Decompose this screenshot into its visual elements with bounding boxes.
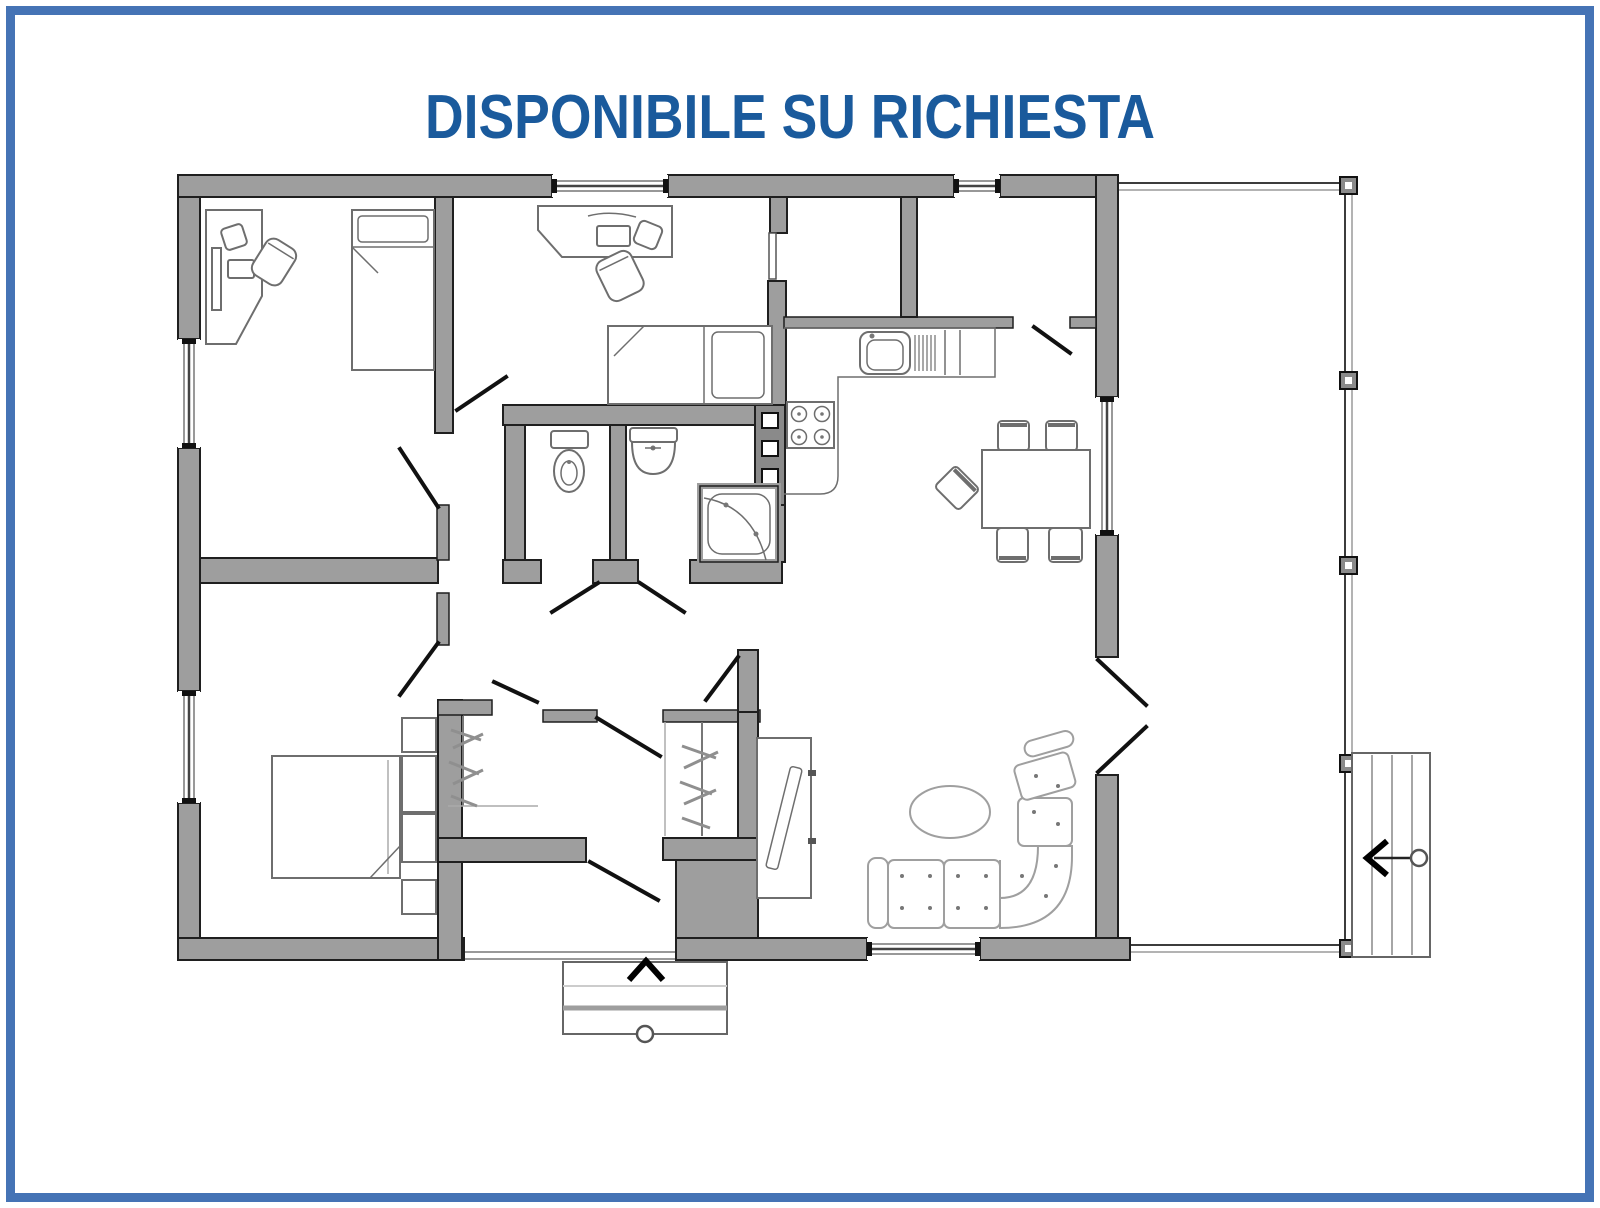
wall-right-2 <box>1096 535 1118 657</box>
wall-closet-a-stub <box>543 710 597 722</box>
wall-top-1 <box>178 175 552 197</box>
entry-start-marker <box>637 1026 653 1042</box>
wall-bottom-right <box>980 938 1130 960</box>
bedroom1-furniture <box>206 210 434 370</box>
page-title: DISPONIBILE SU RICHIESTA <box>425 83 1155 152</box>
wall-living-west-upper <box>738 650 758 712</box>
sofa-armrest-left <box>868 858 888 928</box>
floor-plan-page: DISPONIBILE SU RICHIESTA <box>0 0 1600 1208</box>
desk1-keyboard <box>228 260 254 278</box>
wall-bath-foot-west <box>503 560 541 583</box>
wall-corner-block <box>676 860 758 938</box>
floor-plan-svg: DISPONIBILE SU RICHIESTA <box>0 0 1600 1208</box>
window-right <box>1096 397 1118 535</box>
door-living-room <box>706 657 738 700</box>
hanging-clothes-2 <box>680 746 718 828</box>
master-bedroom-furniture <box>272 718 436 914</box>
double-bed <box>272 756 400 878</box>
wall-bath-middle <box>610 425 626 562</box>
wall-right-1 <box>1096 175 1118 397</box>
terrace <box>1112 177 1430 957</box>
living-room-furniture <box>757 729 1077 928</box>
wall-strip-stub <box>770 197 787 233</box>
single-bed-1 <box>352 210 434 370</box>
window-top-2 <box>954 175 1000 197</box>
window-left-1 <box>178 339 200 448</box>
wall-right-3 <box>1096 775 1118 938</box>
door-closet-a <box>494 682 537 702</box>
kitchen-sink <box>860 332 910 374</box>
wall-utility-west <box>901 197 917 317</box>
steps-start-marker <box>1411 850 1427 866</box>
door-master-bedroom <box>400 643 438 695</box>
door-bedroom2 <box>457 377 506 410</box>
wall-top-2 <box>668 175 954 197</box>
shower-cabin <box>700 486 778 562</box>
dining-chair-1 <box>998 421 1029 451</box>
wall-vestibule-north <box>438 838 586 862</box>
door-open-kitchen <box>769 233 776 279</box>
stove-4-burners <box>787 402 834 448</box>
terrace-posts <box>1112 177 1357 957</box>
wall-stub-b <box>437 593 449 645</box>
french-door-leaf-2 <box>1098 727 1146 772</box>
window-left-2 <box>178 691 200 803</box>
wall-bottom-center <box>676 938 867 960</box>
dining-chair-2 <box>1046 421 1077 451</box>
entry-steps <box>464 952 727 1042</box>
wall-closet-b-south <box>663 838 758 860</box>
wall-kitchen-north <box>784 317 1013 328</box>
outdoor-steps <box>1352 753 1430 957</box>
door-utility-room <box>1034 327 1070 353</box>
wall-bath-west <box>505 425 525 562</box>
door-shower-room <box>640 583 684 612</box>
single-bed-2 <box>608 326 772 404</box>
bathroom-fixtures <box>551 428 778 562</box>
dining-table <box>982 450 1090 528</box>
wall-bath-foot-center <box>593 560 638 583</box>
tv-cabinet <box>757 738 816 898</box>
desk2-keyboard <box>597 226 630 246</box>
dish-drainer <box>915 335 935 371</box>
bedroom2-furniture <box>538 206 772 404</box>
door-passage <box>597 718 660 756</box>
wall-closet-b-east <box>738 712 758 838</box>
door-bedroom1 <box>400 449 438 507</box>
wall-bath-north <box>503 405 770 425</box>
washbasin <box>630 428 677 474</box>
wall-left-3 <box>178 803 200 960</box>
dining-chair-3 <box>997 528 1028 562</box>
wall-master-east <box>438 700 462 960</box>
wall-kitchen-north-stub <box>1070 317 1096 328</box>
dining-chair-5 <box>934 465 979 510</box>
dining-chair-4 <box>1049 528 1082 562</box>
wardrobe-column <box>402 718 436 914</box>
closet-right <box>665 722 718 836</box>
kitchen-furniture <box>784 328 995 494</box>
door-vestibule <box>590 862 658 900</box>
coffee-table <box>910 786 990 838</box>
wall-bottom-master <box>178 938 464 960</box>
wall-left-rooms-divider <box>200 558 438 583</box>
wall-stub-a <box>437 505 449 560</box>
wall-bed1-east <box>435 197 453 433</box>
wall-closet-a-north <box>438 700 492 715</box>
dining-furniture <box>934 421 1090 562</box>
wall-left-2 <box>178 448 200 691</box>
wall-left-1 <box>178 197 200 339</box>
toilet <box>551 431 588 492</box>
window-top-1 <box>552 175 668 197</box>
door-wc <box>552 583 598 612</box>
desk1-shelf <box>212 248 221 310</box>
french-door-leaf-1 <box>1098 660 1146 705</box>
window-bottom <box>867 938 980 960</box>
